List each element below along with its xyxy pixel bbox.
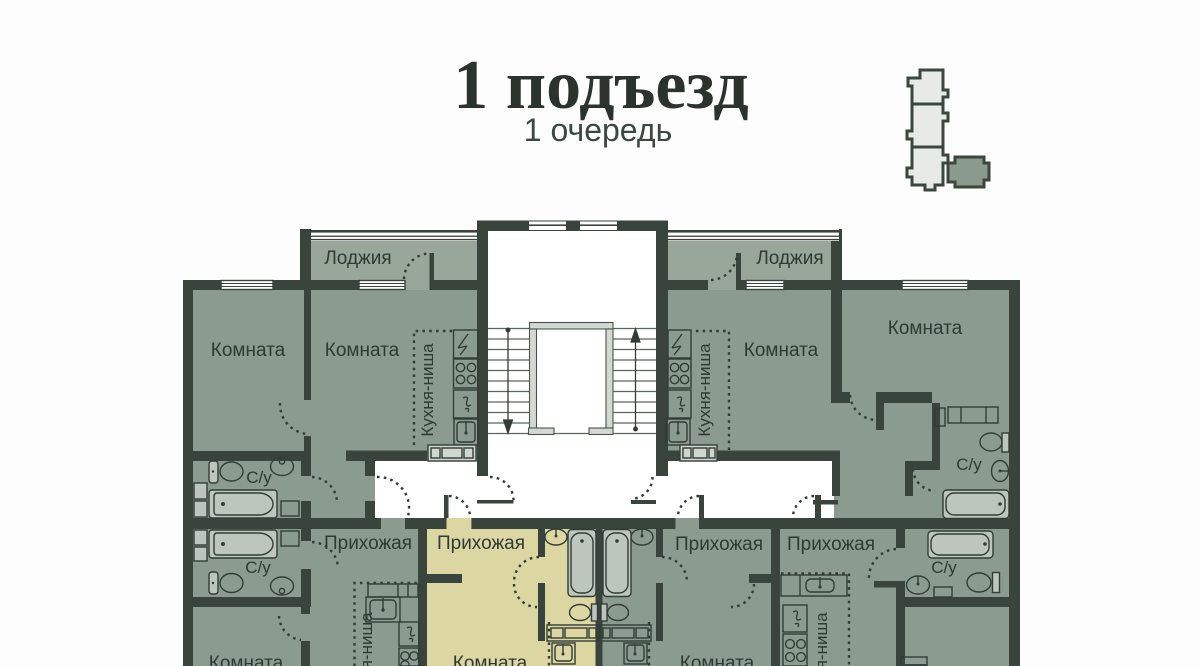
svg-text:Кухня-ниша: Кухня-ниша bbox=[695, 343, 714, 437]
svg-text:Прихожая: Прихожая bbox=[787, 534, 875, 555]
svg-text:Комната: Комната bbox=[209, 653, 284, 666]
svg-text:Лоджия: Лоджия bbox=[756, 248, 823, 269]
svg-text:Комната: Комната bbox=[888, 318, 963, 339]
svg-text:Комната: Комната bbox=[453, 653, 528, 666]
svg-text:Лоджия: Лоджия bbox=[324, 248, 391, 269]
svg-text:С/у: С/у bbox=[245, 558, 271, 577]
svg-text:Комната: Комната bbox=[211, 340, 286, 361]
svg-text:Прихожая: Прихожая bbox=[324, 533, 412, 554]
svg-text:1 очередь: 1 очередь bbox=[524, 112, 672, 148]
svg-text:Комната: Комната bbox=[325, 340, 400, 361]
svg-text:Кухня-ниша: Кухня-ниша bbox=[357, 612, 376, 666]
svg-text:С/у: С/у bbox=[246, 468, 272, 487]
svg-text:Прихожая: Прихожая bbox=[437, 533, 525, 554]
svg-text:Прихожая: Прихожая bbox=[675, 534, 763, 555]
svg-text:Комната: Комната bbox=[680, 653, 755, 666]
svg-text:Кухня-ниша: Кухня-ниша bbox=[812, 612, 831, 666]
svg-text:С/у: С/у bbox=[931, 558, 957, 577]
svg-text:Кухня-ниша: Кухня-ниша bbox=[418, 343, 437, 437]
svg-text:С/у: С/у bbox=[956, 455, 982, 474]
svg-text:Комната: Комната bbox=[744, 340, 819, 361]
